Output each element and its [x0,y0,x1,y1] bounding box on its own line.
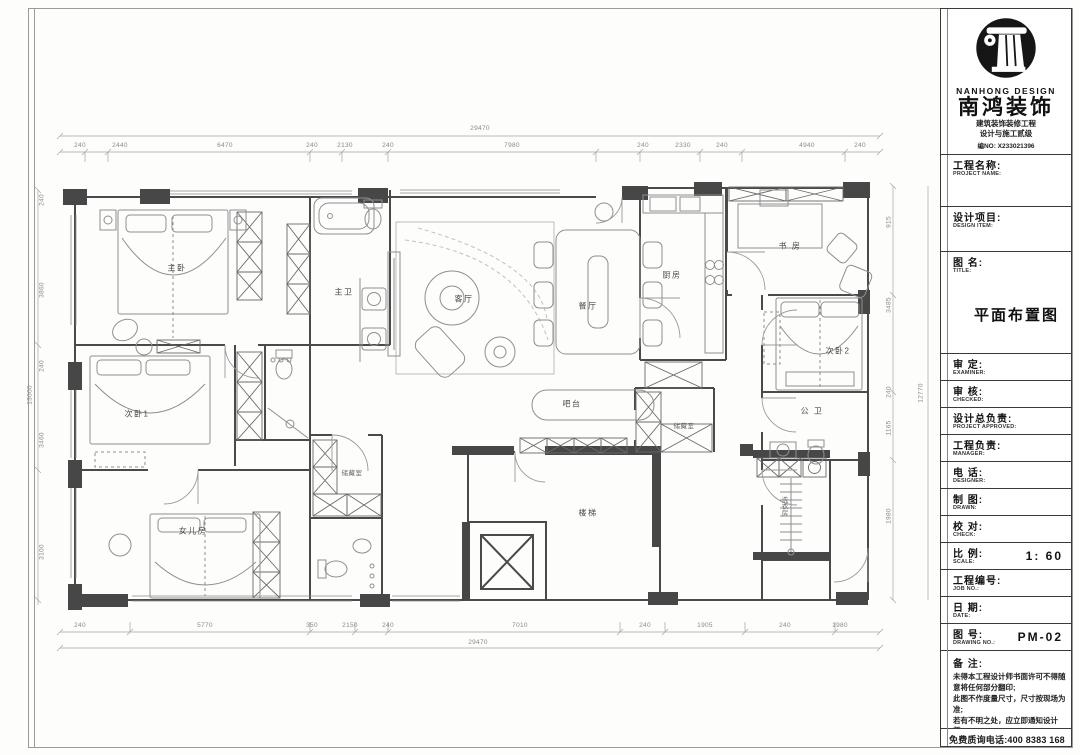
titleblock-row: 日 期:DATE: [941,596,1071,623]
bench-master [157,340,200,353]
floor-plan-drawing [0,0,1080,755]
drawing-sheet: { "title_block": { "brand_en": "NANHONG … [0,0,1080,755]
notes-label: 备 注: [953,655,1066,670]
wardrobe-master [237,212,310,314]
titleblock-row: 比 例:SCALE:1: 60 [941,542,1071,569]
note-line: 未得本工程设计师书面许可不得随意将任何部分翻印; [953,672,1066,694]
drying-rack [780,478,802,555]
titleblock-row: 图 号:DRAWING NO.:PM-02 [941,623,1071,650]
bed-1 [90,356,210,467]
cert-line-2: 设计与施工贰级 [941,129,1071,139]
titleblock-row: 制 图:DRAWN: [941,488,1071,515]
titleblock-row: 电 话:DESIGNER: [941,461,1071,488]
notes-lines: 未得本工程设计师书面许可不得随意将任何部分翻印;此图不作度量尺寸，尺寸按现场为准… [953,672,1066,728]
titleblock-row: 工程编号:JOB NO.: [941,569,1071,596]
bath-1 [268,350,308,438]
kitchen-cabinet [645,362,702,388]
titleblock-row: 工程名称:PROJECT NAME: [941,154,1071,206]
bath-girl [318,539,374,588]
toilet-master [364,200,382,229]
vanity-master [360,278,386,362]
bed-girl [109,514,260,598]
titleblock-row: 工程负责:MANAGER: [941,434,1071,461]
titleblock-row: 图 名:TITLE:平面布置图 [941,251,1071,353]
kitchen-counter [643,195,724,353]
titleblock-row: 设计项目:DESIGN ITEM: [941,206,1071,251]
brand-name-cn: 南鸿装饰 [941,96,1071,119]
titleblock-row: 设计总负责:PROJECT APPROVED: [941,407,1071,434]
sheet-frame [29,9,1073,748]
notes-block: 备 注: 未得本工程设计师书面许可不得随意将任何部分翻印;此图不作度量尺寸，尺寸… [941,650,1071,728]
titleblock-row: 审 定:EXAMINER: [941,353,1071,380]
bed-2 [764,298,862,390]
windows [71,190,560,601]
closet-storage-left [313,440,381,516]
cert-line-1: 建筑装饰装修工程 [941,119,1071,129]
wardrobe-bed1 [237,352,262,440]
titleblock-value: 平面布置图 [974,304,1059,325]
titleblock-value: 1: 60 [1026,549,1063,563]
study-desk [738,190,873,299]
living-room-set [388,222,554,381]
titleblock-value: PM-02 [1018,630,1063,644]
nanhong-logo-icon [975,17,1037,79]
bookshelf-study [729,187,843,201]
wardrobe-girls-room [253,512,280,598]
cert-number: 编NO: X233021396 [941,140,1071,150]
title-block: NANHONG DESIGN 南鸿装饰 建筑装饰装修工程 设计与施工贰级 编NO… [940,8,1072,747]
note-line: 若有不明之处，应立即通知设计师。 [953,716,1066,729]
hotline: 免费质询电话:400 8383 168 [941,728,1071,746]
titleblock-row: 校 对:CHECK: [941,515,1071,542]
note-line: 此图不作度量尺寸，尺寸按现场为准; [953,694,1066,716]
columns [63,182,870,610]
closet-storage-right [636,392,712,452]
logo-block: NANHONG DESIGN 南鸿装饰 建筑装饰装修工程 设计与施工贰级 编NO… [941,9,1071,154]
titleblock-row: 审 核:CHECKED: [941,380,1071,407]
bed-master [100,210,246,355]
dining-set [534,230,662,354]
